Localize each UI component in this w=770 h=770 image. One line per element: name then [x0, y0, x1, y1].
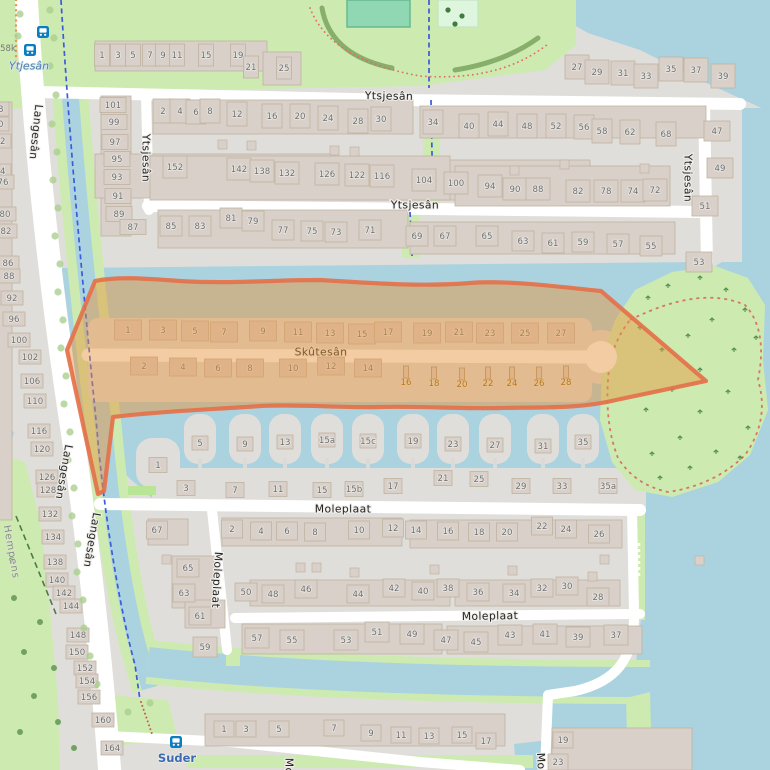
house-number: 63 [518, 237, 529, 247]
house-number: 13 [424, 732, 435, 742]
street-label: Moleplaat [462, 609, 519, 623]
house-number: 89 [114, 210, 125, 220]
house-number: 19 [558, 736, 569, 746]
house-number: 97 [110, 138, 121, 148]
house-number: 28 [593, 593, 604, 603]
house-number: 57 [613, 240, 624, 250]
house-number: 67 [440, 232, 451, 242]
tree-icon [50, 34, 57, 41]
street-label: Ytsjesân [682, 153, 695, 202]
house-number: 77 [278, 226, 289, 236]
playground-icon [452, 21, 457, 26]
house-number: 76 [0, 178, 8, 188]
house-number: 6 [193, 108, 198, 118]
house-number: 17 [481, 737, 492, 747]
house-number: 116 [31, 427, 47, 437]
berth-number: 18 [429, 379, 440, 389]
tree-icon [21, 649, 27, 655]
house-number: 150 [69, 648, 85, 658]
building [150, 156, 450, 200]
house-number: 3 [243, 725, 248, 735]
green-strip [128, 486, 156, 495]
house-number: 44 [353, 590, 364, 600]
berth-number: 26 [534, 379, 545, 389]
building-shed [350, 147, 359, 156]
house-number: 69 [412, 232, 423, 242]
house-number: 4 [258, 527, 263, 537]
house-number: 13 [280, 438, 291, 448]
house-number: 36 [473, 588, 484, 598]
house-number: 164 [104, 744, 120, 754]
house-number: 55 [287, 636, 298, 646]
house-number: 78 [601, 187, 612, 197]
tree-icon [16, 10, 23, 17]
building-shed [296, 563, 305, 572]
building-shed [312, 563, 321, 572]
house-number: 15 [317, 486, 328, 496]
house-number: 53 [694, 258, 705, 268]
house-number: 39 [718, 72, 729, 82]
house-number: 72 [0, 137, 5, 147]
house-number: 102 [22, 353, 38, 363]
house-number: 25 [474, 475, 485, 485]
house-number: 81 [226, 214, 237, 224]
berth-number: 20 [457, 380, 468, 390]
house-number: 154 [79, 677, 95, 687]
house-number: 1 [155, 461, 160, 471]
tree-icon [11, 595, 17, 601]
house-number: 46 [301, 585, 312, 595]
house-number: 70 [0, 120, 3, 130]
house-number: 15 [457, 731, 468, 741]
house-number: 29 [516, 482, 527, 492]
house-number: 152 [167, 163, 183, 173]
street-label: Ytsjesân [390, 199, 439, 212]
house-number: 1 [99, 51, 104, 61]
house-number: 144 [63, 602, 79, 612]
bus-stop-icon[interactable] [37, 26, 49, 38]
house-number: 9 [242, 440, 247, 450]
house-number: 74 [628, 187, 639, 197]
house-number: 32 [537, 584, 548, 594]
house-number: 27 [490, 441, 501, 451]
house-number: 142 [56, 589, 72, 599]
tree-icon [31, 693, 37, 699]
house-number: 126 [39, 473, 55, 483]
house-number: 59 [200, 643, 211, 653]
playground-icon [459, 13, 464, 18]
house-number: 31 [538, 442, 549, 452]
house-number: 71 [365, 226, 376, 236]
house-number: 83 [195, 222, 206, 232]
house-number: 23 [448, 440, 459, 450]
house-number: 41 [540, 630, 551, 640]
house-number: 43 [505, 631, 516, 641]
house-number: 88 [4, 272, 15, 282]
house-number: 138 [47, 558, 63, 568]
building-shed [330, 146, 339, 155]
berth-number: 22 [483, 379, 494, 389]
house-number: 20 [295, 112, 306, 122]
house-number: 19 [233, 51, 244, 61]
house-number: 27 [572, 63, 583, 73]
house-number: 12 [232, 110, 243, 120]
map-canvas[interactable]: 1357911151921252729313335373910199979593… [0, 0, 770, 770]
building-shed [508, 566, 517, 575]
house-number: 57 [252, 634, 263, 644]
playground [438, 0, 478, 27]
house-number: 38 [443, 584, 454, 594]
house-number: 19 [408, 437, 419, 447]
bus-stop-icon[interactable] [170, 736, 182, 748]
building-shed [640, 164, 649, 173]
tree-icon [146, 699, 153, 706]
house-number: 37 [691, 66, 702, 76]
tree-icon [86, 652, 93, 659]
tree-icon [71, 745, 77, 751]
tree-icon [73, 568, 80, 575]
house-number: 21 [246, 63, 257, 73]
road-moleplaat[interactable] [235, 614, 640, 618]
tree-icon [14, 32, 21, 39]
building-shed [600, 555, 609, 564]
house-number: 7 [147, 51, 152, 61]
house-number: 73 [331, 228, 342, 238]
house-number: 21 [438, 474, 449, 484]
house-number: 31 [618, 69, 629, 79]
house-number: 55 [646, 242, 657, 252]
house-number: 138 [254, 167, 270, 177]
house-number: 40 [464, 122, 475, 132]
street-label: Moleplaat [315, 503, 371, 516]
house-number: 160 [95, 716, 111, 726]
house-number: 11 [172, 51, 183, 61]
house-number: 45 [471, 638, 482, 648]
house-number: 101 [105, 101, 121, 111]
house-number: 65 [183, 564, 194, 574]
house-number: 49 [715, 164, 726, 174]
house-number: 42 [389, 584, 400, 594]
house-number: 91 [113, 192, 124, 202]
house-number: 35a [600, 482, 616, 492]
house-number: 6 [284, 527, 289, 537]
house-number: 51 [372, 628, 383, 638]
berth-number: 24 [507, 379, 518, 389]
house-number: 106 [24, 377, 40, 387]
house-number: 5 [197, 439, 202, 449]
house-number: 40 [418, 587, 429, 597]
house-number: 99 [109, 118, 120, 128]
house-number: 72 [650, 186, 661, 196]
house-number: 35 [578, 438, 589, 448]
house-number: 148 [70, 631, 86, 641]
house-number: 1 [221, 725, 226, 735]
house-number: 87 [128, 223, 139, 233]
house-number: 34 [509, 589, 520, 599]
house-number: 68 [0, 105, 3, 115]
tree-icon [66, 428, 73, 435]
house-number: 104 [416, 176, 432, 186]
house-number: 142 [231, 165, 247, 175]
house-number: 68 [661, 130, 672, 140]
house-number: 85 [166, 222, 177, 232]
house-number: 18 [474, 528, 485, 538]
house-number: 34 [428, 118, 439, 128]
water-label: Ytjesân [9, 60, 49, 73]
house-number: 30 [562, 582, 573, 592]
house-number: 26 [594, 530, 605, 540]
house-number: 63 [179, 589, 190, 599]
house-number: 9 [368, 729, 373, 739]
building-shed [162, 555, 171, 564]
house-number: 15a [319, 436, 335, 446]
tree-icon [79, 596, 86, 603]
house-number: 10 [354, 526, 365, 536]
house-number: 50 [241, 588, 252, 598]
building-shed [430, 565, 439, 574]
house-number: 126 [319, 170, 335, 180]
house-number: 96 [9, 315, 20, 325]
house-number: 25 [279, 64, 290, 74]
house-number: 28 [353, 117, 364, 127]
house-number: 94 [485, 182, 496, 192]
tree-icon [17, 729, 23, 735]
house-number: 122 [349, 171, 365, 181]
house-number: 156 [81, 693, 97, 703]
house-number: 47 [712, 127, 723, 137]
house-number: 61 [195, 612, 206, 622]
bus-stop-icon[interactable] [24, 44, 36, 56]
house-number: 3 [183, 484, 188, 494]
transit-label: Suder [158, 751, 197, 765]
street-label: Moleplaat [534, 752, 550, 770]
house-number: 3 [115, 51, 120, 61]
tree-icon [62, 372, 69, 379]
house-number: 90 [510, 185, 521, 195]
house-number: 65 [482, 232, 493, 242]
house-number: 7 [232, 486, 237, 496]
street-label: Ytsjesân [364, 89, 414, 103]
house-number: 56 [579, 123, 590, 133]
house-number: 29 [592, 68, 603, 78]
house-number: 67 [152, 526, 163, 536]
house-number: 22 [537, 522, 548, 532]
house-number: 93 [112, 173, 123, 183]
house-number: 15 [201, 51, 212, 61]
house-number: 8 [207, 107, 212, 117]
sports-pitch [347, 0, 410, 27]
house-number: 15b [346, 485, 362, 495]
house-number: 30 [376, 115, 387, 125]
tree-icon [53, 148, 60, 155]
tree-icon [54, 288, 61, 295]
tree-icon [51, 232, 58, 239]
house-number: 79 [248, 217, 259, 227]
house-number: 2 [160, 107, 165, 117]
house-number: 17 [388, 482, 399, 492]
house-number: 152 [77, 664, 93, 674]
house-number: 48 [522, 122, 533, 132]
building-shed [588, 572, 597, 581]
house-number: 58 [597, 127, 608, 137]
street-label: Ytsjesân [140, 133, 153, 182]
house-number: 92 [7, 294, 18, 304]
tree-icon [59, 316, 66, 323]
tree-icon [57, 344, 64, 351]
house-number: 86 [3, 259, 14, 269]
house-number: 116 [374, 172, 390, 182]
building-shed [560, 160, 569, 169]
house-number: 132 [42, 510, 58, 520]
house-number: 110 [27, 397, 43, 407]
house-number: 47 [441, 636, 452, 646]
house-number: 2 [229, 525, 234, 535]
house-number: 5 [130, 51, 135, 61]
house-number: 11 [396, 731, 407, 741]
house-number: 51 [700, 202, 711, 212]
tree-icon [56, 260, 63, 267]
house-number: 14 [411, 526, 422, 536]
playground-icon [445, 7, 450, 12]
tree-icon [52, 91, 59, 98]
tree-icon [70, 484, 77, 491]
berth-number: 16 [401, 378, 412, 388]
house-number: 95 [112, 155, 123, 165]
house-number: 24 [561, 525, 572, 535]
tree-icon [46, 6, 53, 13]
small-label: 58k [0, 44, 16, 54]
house-number: 23 [553, 758, 564, 768]
map-viewport[interactable]: 1357911151921252729313335373910199979593… [0, 0, 770, 770]
house-number: 33 [557, 482, 568, 492]
house-number: 140 [49, 576, 65, 586]
house-number: 16 [267, 112, 278, 122]
house-number: 44 [493, 120, 504, 130]
house-number: 24 [323, 114, 334, 124]
building-shed [350, 568, 359, 577]
house-number: 11 [273, 485, 284, 495]
house-number: 80 [0, 210, 10, 220]
house-number: 15c [360, 437, 376, 447]
house-number: 8 [312, 528, 317, 538]
house-number: 100 [11, 336, 27, 346]
house-number: 61 [548, 239, 559, 249]
building-shed [510, 166, 519, 175]
house-number: 74 [0, 167, 5, 177]
house-number: 134 [45, 533, 61, 543]
house-number: 33 [641, 72, 652, 82]
house-number: 5 [276, 725, 281, 735]
berth-number: 28 [561, 378, 572, 388]
house-number: 9 [160, 51, 165, 61]
house-number: 37 [611, 631, 622, 641]
tree-icon [74, 540, 81, 547]
house-number: 120 [34, 445, 50, 455]
house-number: 88 [533, 185, 544, 195]
tree-icon [51, 665, 57, 671]
house-number: 16 [443, 527, 454, 537]
tree-icon [54, 204, 61, 211]
house-number: 59 [578, 238, 589, 248]
house-number: 7 [331, 724, 336, 734]
tree-icon [48, 120, 55, 127]
house-number: 82 [1, 227, 12, 237]
tree-icon [37, 619, 43, 625]
house-number: 4 [177, 107, 182, 117]
house-number: 39 [573, 633, 584, 643]
building-shed [247, 141, 256, 150]
tree-icon [68, 512, 75, 519]
house-number: 20 [502, 528, 513, 538]
house-number: 12 [388, 524, 399, 534]
house-number: 49 [407, 630, 418, 640]
house-number: 53 [341, 636, 352, 646]
tree-icon [60, 400, 67, 407]
building-shed [695, 556, 704, 565]
street-label: Moleplaat [283, 758, 296, 770]
tree-icon [124, 708, 131, 715]
house-number: 100 [448, 179, 464, 189]
house-number: 35 [666, 65, 677, 75]
house-number: 75 [307, 227, 318, 237]
house-number: 48 [268, 590, 279, 600]
house-number: 62 [625, 128, 636, 138]
tree-icon [55, 719, 61, 725]
house-number: 52 [551, 122, 562, 132]
tree-icon [49, 176, 56, 183]
house-number: 132 [279, 169, 295, 179]
house-number: 82 [573, 187, 584, 197]
building-shed [218, 140, 227, 149]
